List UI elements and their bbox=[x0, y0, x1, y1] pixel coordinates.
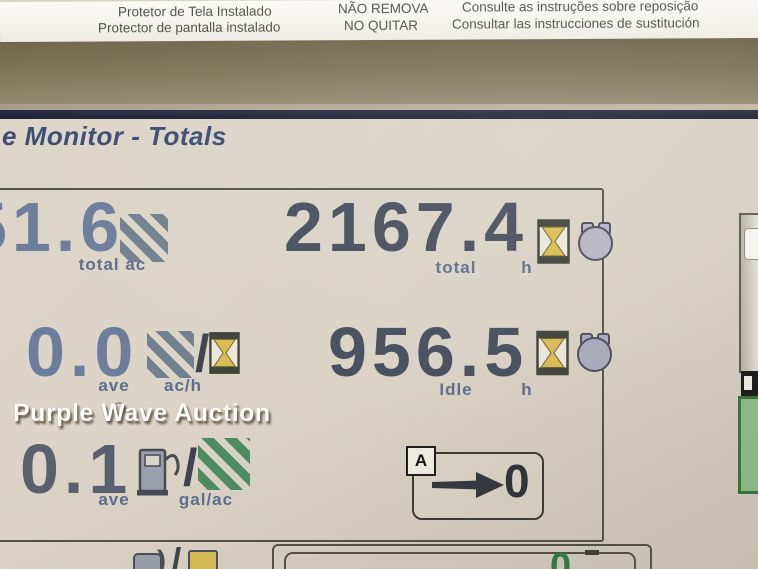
total-acres-value: 51.6 bbox=[0, 192, 124, 262]
per-separator: / bbox=[195, 328, 209, 380]
next-section-button[interactable] bbox=[284, 552, 636, 569]
engine-icon bbox=[575, 219, 616, 267]
ave-fuel-label: ave bbox=[88, 490, 140, 510]
screen-top-edge bbox=[0, 110, 758, 119]
total-acres-label: total ac bbox=[55, 255, 170, 275]
idle-hours-label: Idle bbox=[428, 380, 484, 400]
engine-icon bbox=[574, 330, 615, 378]
monitor-photo: Protetor de Tela Instalado NÃO REMOVA Co… bbox=[0, 0, 758, 569]
scrollbar-thumb[interactable] bbox=[744, 228, 758, 260]
next-section-partial-value: 0 bbox=[550, 548, 571, 569]
arrow-right-icon bbox=[432, 472, 506, 503]
total-hours-unit: h bbox=[516, 258, 538, 278]
area-hatch-icon bbox=[147, 331, 194, 378]
monitor-screen: e Monitor - Totals 51.6 total ac 2167.4 … bbox=[0, 119, 758, 569]
hourglass-icon bbox=[188, 550, 218, 569]
softkey-letter-fragment bbox=[744, 376, 752, 390]
sticker-text-pt-warning: NÃO REMOVA bbox=[338, 1, 429, 16]
softkey-badge-partial bbox=[741, 371, 758, 396]
green-indicator-box bbox=[738, 396, 758, 494]
area-hatch-icon bbox=[198, 438, 250, 490]
ave-rate-label: ave bbox=[88, 376, 140, 396]
sticker-text-pt-note: Consulte as instruções sobre reposição bbox=[462, 0, 698, 15]
page-title: e Monitor - Totals bbox=[2, 121, 227, 152]
sticker-text-es-note: Consultar las instrucciones de sustituci… bbox=[452, 15, 700, 31]
pump-hose-mark: ) bbox=[157, 547, 166, 569]
hourglass-icon bbox=[537, 219, 570, 269]
idle-hours-value: 956.5 bbox=[328, 317, 528, 387]
hourglass-icon bbox=[536, 330, 569, 381]
total-hours-label: total bbox=[425, 258, 487, 278]
idle-hours-unit: h bbox=[516, 380, 538, 400]
ave-rate-unit: ac/h bbox=[153, 376, 213, 396]
monitor-bezel-band bbox=[0, 37, 758, 108]
screen-protector-sticker: Protetor de Tela Instalado NÃO REMOVA Co… bbox=[0, 0, 758, 42]
watermark: Purple Wave Auction bbox=[13, 399, 271, 428]
total-hours-value: 2167.4 bbox=[284, 192, 528, 262]
ave-fuel-unit: gal/ac bbox=[168, 490, 244, 510]
hourglass-icon bbox=[209, 330, 240, 381]
sticker-text-es-installed: Protector de pantalla instalado bbox=[98, 20, 280, 36]
per-separator: / bbox=[171, 543, 181, 569]
per-separator: / bbox=[183, 442, 197, 494]
partial-glyph-mark bbox=[585, 550, 599, 555]
sticker-text-es-warning: NO QUITAR bbox=[344, 18, 418, 33]
reset-zero-value: 0 bbox=[504, 458, 530, 504]
sticker-text-pt-installed: Protetor de Tela Instalado bbox=[118, 4, 272, 20]
